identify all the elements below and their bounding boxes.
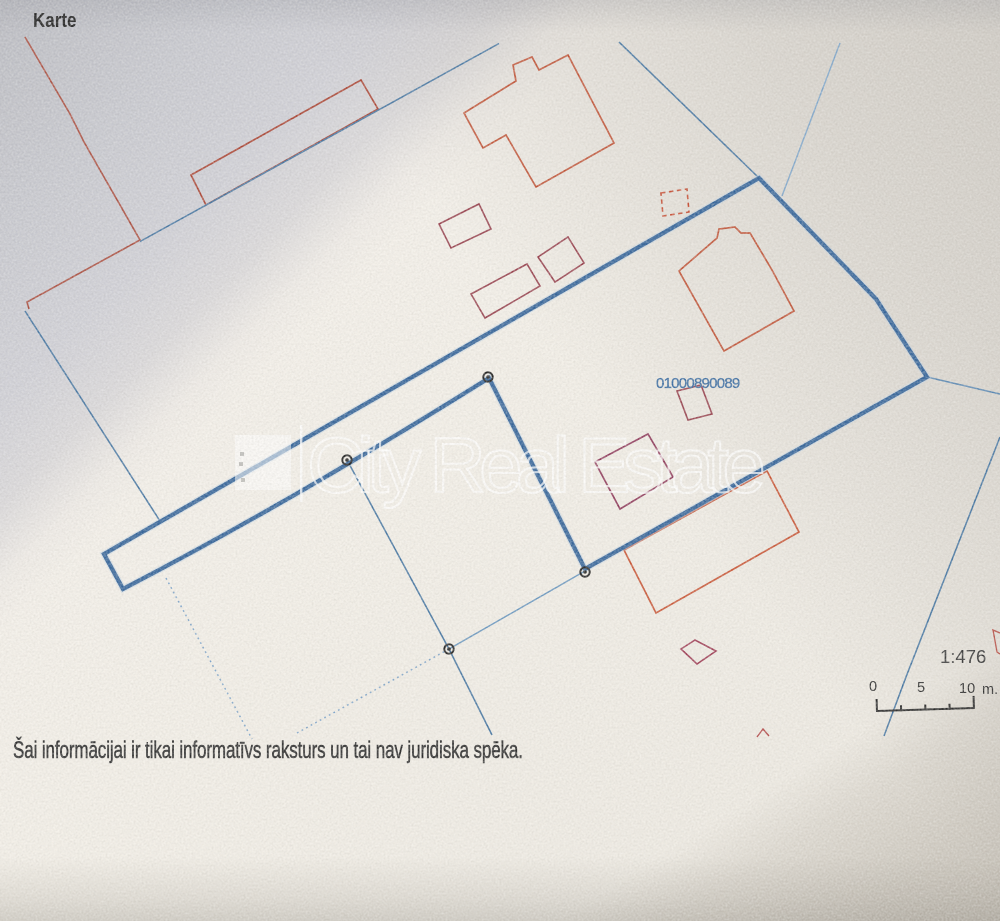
- svg-text:0: 0: [869, 679, 877, 695]
- svg-text:Šai informācijai ir tikai info: Šai informācijai ir tikai informatīvs ra…: [13, 737, 523, 764]
- svg-text:m.: m.: [982, 682, 998, 698]
- svg-text:01000890089: 01000890089: [656, 375, 740, 392]
- svg-text:Karte: Karte: [33, 9, 76, 32]
- svg-text:5: 5: [917, 680, 925, 696]
- svg-text:City Real Estate: City Real Estate: [307, 421, 762, 509]
- svg-text:10: 10: [959, 681, 975, 697]
- svg-text:1:476: 1:476: [940, 646, 986, 667]
